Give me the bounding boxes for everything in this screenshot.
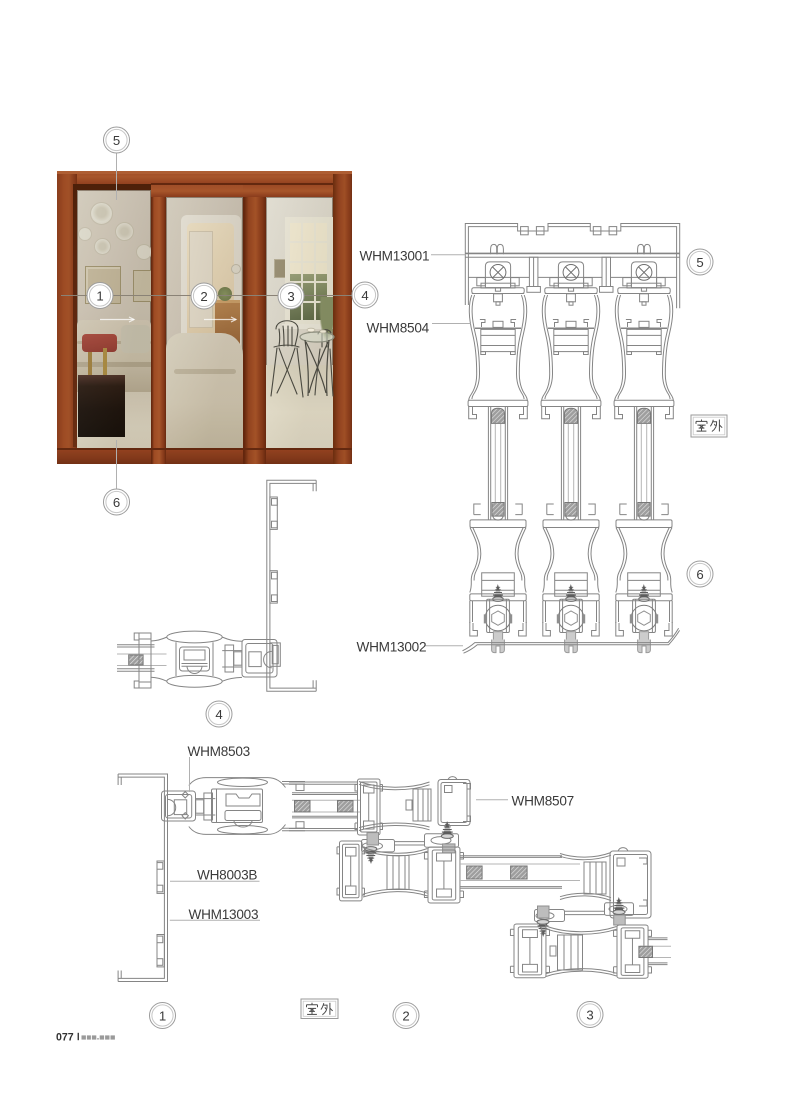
svg-text:WHM13003: WHM13003 xyxy=(189,907,259,922)
svg-text:3: 3 xyxy=(586,1008,593,1023)
svg-text:6: 6 xyxy=(113,495,120,510)
svg-text:WHM8507: WHM8507 xyxy=(512,794,574,809)
svg-text:1: 1 xyxy=(159,1009,166,1024)
svg-text:3: 3 xyxy=(287,289,294,304)
svg-text:WHM8503: WHM8503 xyxy=(188,744,250,759)
svg-text:2: 2 xyxy=(402,1009,409,1024)
svg-text:5: 5 xyxy=(113,133,120,148)
svg-text:WH8003B: WH8003B xyxy=(197,868,257,883)
svg-text:077: 077 xyxy=(56,1032,74,1044)
svg-text:WHM8504: WHM8504 xyxy=(367,321,430,336)
svg-text:1: 1 xyxy=(96,289,103,304)
svg-text:4: 4 xyxy=(215,707,222,722)
svg-text:WHM13001: WHM13001 xyxy=(360,249,430,264)
svg-text:WHM13002: WHM13002 xyxy=(357,640,427,655)
svg-text:2: 2 xyxy=(200,289,207,304)
svg-text:4: 4 xyxy=(361,288,368,303)
svg-text:6: 6 xyxy=(696,567,703,582)
svg-text:5: 5 xyxy=(696,255,703,270)
